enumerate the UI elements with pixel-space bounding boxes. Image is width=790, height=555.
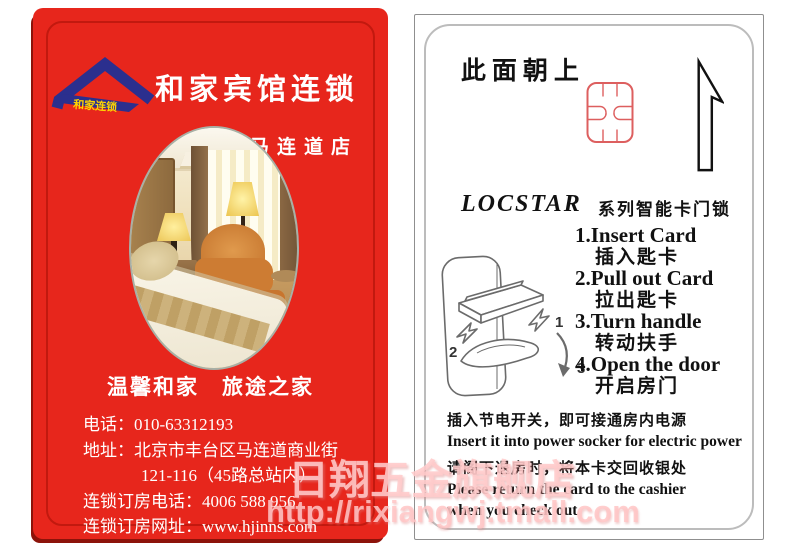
booking-web-url: www.hjinns.com <box>202 517 317 536</box>
return-note-en-line2: when you check out <box>447 500 687 521</box>
step-1-zh: 插入匙卡 <box>575 247 761 269</box>
step-2-en: 2.Pull out Card <box>575 268 761 290</box>
step-4-en: 4.Open the door <box>575 354 761 376</box>
booking-web-label: 连锁订房网址： <box>83 517 202 536</box>
room-photo <box>129 126 299 370</box>
door-lock-diagram: 1 2 3 <box>433 241 589 405</box>
lock-step-label-2: 2 <box>449 344 457 361</box>
step-1-en: 1.Insert Card <box>575 225 761 247</box>
photo-side-table <box>271 270 299 282</box>
phone-label: 电话： <box>83 415 134 434</box>
logo-text: 和家连锁 <box>73 97 118 114</box>
power-note-zh: 插入节电开关，即可接通房内电源 <box>447 411 742 431</box>
booking-phone-line: 连锁订房电话：4006 588 956 <box>83 489 338 515</box>
booking-web-line: 连锁订房网址：www.hjinns.com <box>83 514 338 540</box>
hotel-name-title: 和家宾馆连锁 <box>155 66 381 108</box>
lock-step-label-1: 1 <box>555 314 563 331</box>
address-value: 北京市丰台区马连道商业街 <box>134 441 338 460</box>
power-note: 插入节电开关，即可接通房内电源 Insert it into power soc… <box>447 411 742 452</box>
up-arrow-icon <box>694 49 724 175</box>
instruction-steps: 1.Insert Card 插入匙卡 2.Pull out Card 拉出匙卡 … <box>575 225 761 397</box>
step-4-zh: 开启房门 <box>575 376 761 398</box>
power-note-en: Insert it into power socker for electric… <box>447 431 742 452</box>
phone-line: 电话：010-63312193 <box>83 412 338 438</box>
step-2-zh: 拉出匙卡 <box>575 290 761 312</box>
booking-phone-label: 连锁订房电话： <box>83 492 202 511</box>
smart-chip-icon <box>586 81 634 144</box>
return-note-en-line1: Please return the card to the cashier <box>447 479 687 500</box>
slogan: 温馨和家 旅途之家 <box>33 371 388 401</box>
hotel-roof-logo-icon: 和家连锁 <box>49 52 161 122</box>
booking-phone-number: 4006 588 956 <box>202 492 296 511</box>
address-label: 地址： <box>83 441 134 460</box>
address-line1: 地址：北京市丰台区马连道商业街 <box>83 438 338 464</box>
locstar-brand: LOCSTAR <box>461 191 582 218</box>
phone-number: 010-63312193 <box>134 415 233 434</box>
return-note: 请阁下退房时，将本卡交回收银处 Please return the card t… <box>447 459 687 521</box>
step-3-en: 3.Turn handle <box>575 311 761 333</box>
brand-description: 系列智能卡门锁 <box>598 195 731 220</box>
keycard-front: 和家连锁 和家宾馆连锁 马连道店 温馨和家 旅途之家 <box>33 8 388 539</box>
address-line2: 121-116（45路总站内） <box>83 463 338 489</box>
contact-info: 电话：010-63312193 地址：北京市丰台区马连道商业街 121-116（… <box>83 412 338 540</box>
step-3-zh: 转动扶手 <box>575 333 761 355</box>
keycard-back: 此面朝上 LOCSTAR 系列智能卡门锁 <box>414 14 764 540</box>
return-note-zh: 请阁下退房时，将本卡交回收银处 <box>447 459 687 479</box>
keycard-product-image: 和家连锁 和家宾馆连锁 马连道店 温馨和家 旅途之家 <box>0 0 790 555</box>
